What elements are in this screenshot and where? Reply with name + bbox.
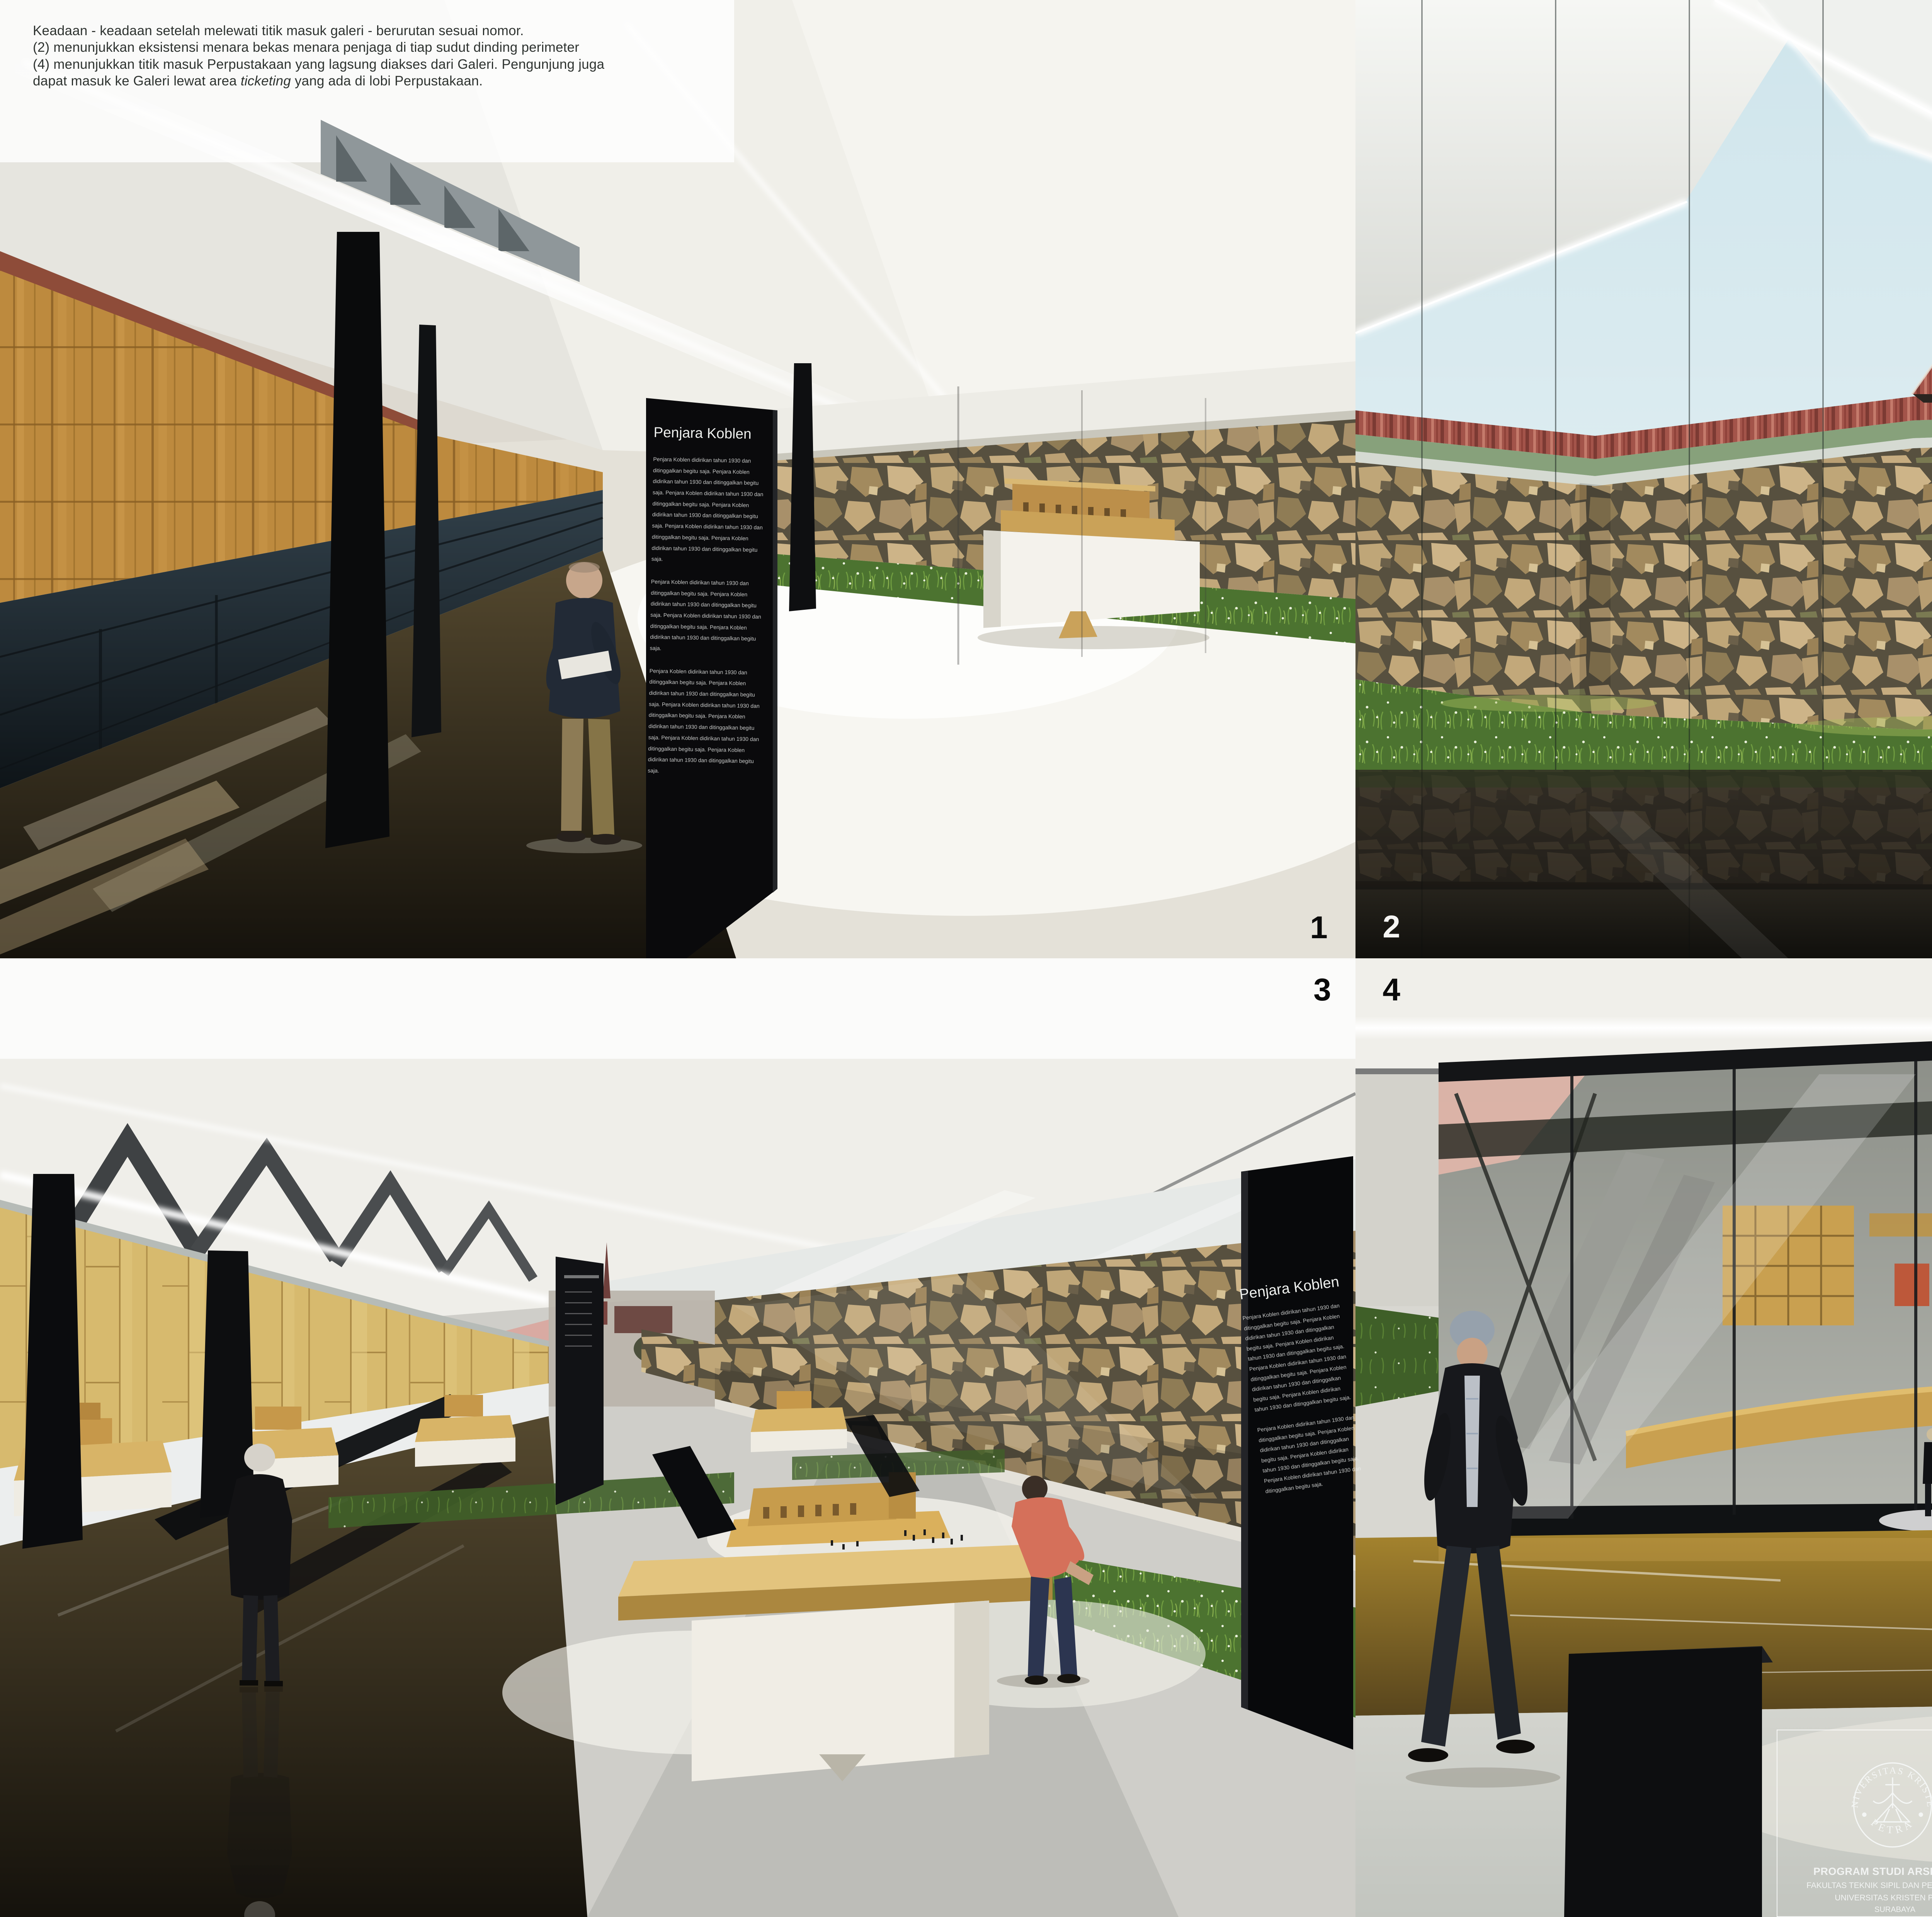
institution-block: UNIVERSITAS KRISTEN PETRA PROGRAM STUDI … [1777,1730,1932,1917]
view-number-2: 2 [1383,911,1400,943]
presentation-board: Keadaan - keadaan setelah melewati titik… [0,0,1932,1917]
title-block: UNIVERSITAS KRISTEN PETRA PROGRAM STUDI … [1777,1730,1932,1917]
logo-arc-bottom: PETRA [1869,1817,1917,1835]
fakultas: FAKULTAS TEKNIK SIPIL DAN PERENCANAAN [1777,1881,1932,1890]
program-studi: PROGRAM STUDI ARSITEKTUR [1777,1866,1932,1878]
grass-strip [1355,1306,1439,1407]
description-line: dapat masuk ke Galeri lewat area ticketi… [33,73,651,89]
board-description: Keadaan - keadaan setelah melewati titik… [33,22,651,90]
description-line: Keadaan - keadaan setelah melewati titik… [33,22,651,39]
render-view-3-gallery-hall [0,958,1355,1917]
petra-university-logo: UNIVERSITAS KRISTEN PETRA [1848,1761,1932,1849]
description-line: (2) menunjukkan eksistensi menara bekas … [33,39,651,56]
exhibit-panel-body: Penjara Koblen didirikan tahun 1930 dan … [651,454,766,566]
view-number-4: 4 [1383,974,1400,1006]
kota: SURABAYA [1777,1905,1932,1914]
black-plinth [1564,1647,1762,1917]
description-line: (4) menunjukkan titik masuk Perpustakaan… [33,56,651,73]
view-number-3: 3 [1313,974,1331,1006]
logo-cross-tent-emblem [1863,1778,1923,1822]
exhibit-panel-body: Penjara Koblen didirikan tahun 1930 dan … [648,665,762,778]
mid-info-panel [556,1257,604,1505]
svg-text:PETRA: PETRA [1869,1817,1917,1835]
exhibit-panel-body: Penjara Koblen didirikan tahun 1930 dan … [1242,1300,1357,1415]
view-number-1: 1 [1310,912,1328,944]
exhibit-panel-title: Penjara Koblen [653,424,767,442]
exhibit-panel-body: Penjara Koblen didirikan tahun 1930 dan … [650,576,764,656]
exhibit-panel-text-1: Penjara Koblen Penjara Koblen didirikan … [645,424,767,940]
universitas: UNIVERSITAS KRISTEN PETRA [1777,1893,1932,1903]
render-view-2-courtyard [1355,0,1932,958]
exhibit-panel-body: Penjara Koblen didirikan tahun 1930 dan … [1257,1412,1367,1496]
